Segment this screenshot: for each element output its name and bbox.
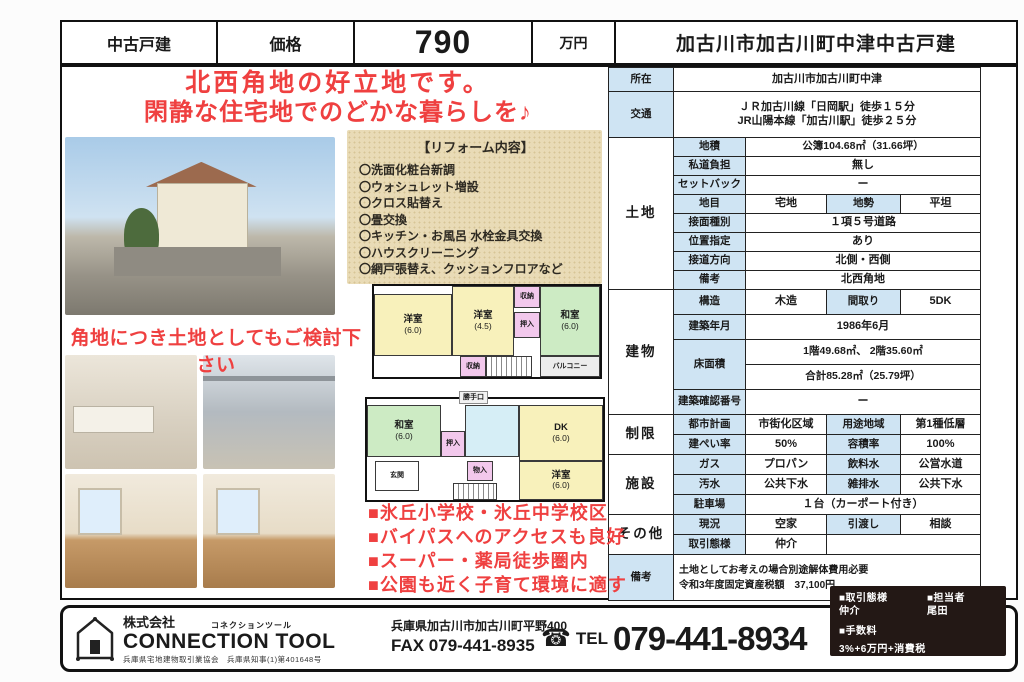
access-line2: JR山陽本線「加古川駅」徒歩２５分 [674, 115, 980, 129]
parking-value: １台（カーポート付き） [746, 495, 981, 515]
plan1f-washitsu: 和室 (6.0) [367, 405, 441, 457]
land-area-value: 公簿104.68㎡（31.66坪） [746, 138, 981, 157]
room-size: (6.0) [395, 432, 412, 441]
company-license: 兵庫県宅地建物取引業協会 兵庫県知事(1)第401648号 [123, 654, 335, 665]
reform-item: 〇ウォシュレット増設 [359, 179, 592, 196]
plan1f-back-door: 勝手口 [459, 391, 488, 404]
plan1f-closet: 物入 [467, 461, 493, 481]
photo-exterior-house-shape [157, 183, 248, 249]
room-name: 和室 [394, 421, 413, 431]
plan1f-oshiire: 押入 [441, 431, 465, 457]
setback-label: セットバック [674, 176, 746, 195]
road-direction-label: 接道方向 [674, 252, 746, 271]
drainage-value: 公共下水 [901, 475, 981, 495]
phone-icon: ☎ [541, 627, 571, 651]
land-note-label: 備考 [674, 271, 746, 290]
photo-exterior [65, 137, 335, 315]
selling-point: ■バイパスへのアクセスも良好 [368, 525, 627, 549]
info-transaction-value: 仲介 [839, 605, 927, 618]
transaction-type-label: 取引態様 [674, 535, 746, 555]
info-fee-label: ■手数料 [839, 626, 877, 637]
city-plan-value: 市街化区域 [746, 415, 827, 435]
info-fee-value: 3%+6万円+消費税 [839, 644, 926, 655]
reform-item: 〇クロス貼替え [359, 195, 592, 212]
reform-item: 〇洗面化粧台新調 [359, 162, 592, 179]
current-status-value: 空家 [746, 515, 827, 535]
handover-label: 引渡し [827, 515, 901, 535]
room-size: (6.0) [552, 481, 569, 490]
reform-item: 〇畳交換 [359, 212, 592, 229]
restriction-section-label: 制限 [609, 415, 674, 455]
plan1f-stairs [453, 483, 497, 500]
built-date-value: 1986年6月 [746, 315, 981, 340]
sewage-label: 汚水 [674, 475, 746, 495]
plan2f-room-east: 和室 (6.0) [540, 286, 600, 356]
real-estate-flyer: 中古戸建 価格 790 万円 加古川市加古川町中津中古戸建 北西角地の好立地です… [60, 20, 1018, 672]
room-size: (4.5) [474, 322, 491, 331]
private-road-value: 無し [746, 157, 981, 176]
drainage-label: 雑排水 [827, 475, 901, 495]
floor-area-ratio-label: 容積率 [827, 435, 901, 455]
handover-value: 相談 [901, 515, 981, 535]
road-type-label: 接面種別 [674, 214, 746, 233]
property-type: 中古戸建 [62, 22, 218, 63]
floor-area-line2: 合計85.28㎡（25.79坪） [746, 365, 981, 390]
selling-point: ■氷丘小学校・氷丘中学校区 [368, 501, 627, 525]
floor-plan-2f: 洋室 (6.0) 洋室 (4.5) 収納 押入 和室 (6.0) [372, 284, 602, 379]
plan1f-entrance: 玄関 [375, 461, 419, 491]
access-label: 交通 [609, 92, 674, 138]
info-agent-label: ■担当者 [927, 592, 997, 605]
agent-info-box: ■取引態様 ■担当者 仲介 尾田 ■手数料 3%+6万円+消費税 [830, 586, 1006, 656]
photo-kitchen-counter-shape [73, 406, 154, 433]
room-name: 洋室 [473, 311, 492, 321]
terrain-value: 平坦 [901, 195, 981, 214]
photo-exterior-wall-shape [114, 247, 281, 275]
building-section-label: 建物 [609, 290, 674, 415]
plan2f-closet-top: 収納 [514, 286, 540, 308]
structure-label: 構造 [674, 290, 746, 315]
photo-room-window-shape [78, 488, 122, 535]
selling-point: ■公園も近く子育て環境に適す [368, 573, 627, 597]
company-prefix: 株式会社 [123, 612, 175, 631]
zoning-value: 第1種低層 [901, 415, 981, 435]
closet-label: 物入 [473, 467, 487, 475]
balcony-label: バルコニー [553, 363, 588, 371]
room-size: (6.0) [404, 326, 421, 335]
price-value: 790 [355, 22, 533, 63]
access-line1: ＪＲ加古川線「日岡駅」徒歩１５分 [674, 101, 980, 115]
footer-bar: 株式会社 コネクションツール CONNECTION TOOL 兵庫県宅地建物取引… [60, 605, 1018, 672]
empty-cell [827, 535, 981, 555]
land-section-label: 土地 [609, 138, 674, 290]
sewage-value: 公共下水 [746, 475, 827, 495]
land-note-value: 北西角地 [746, 271, 981, 290]
position-designation-label: 位置指定 [674, 233, 746, 252]
price-unit: 万円 [533, 22, 616, 63]
closet-label: 収納 [520, 293, 534, 301]
company-block: 株式会社 コネクションツール CONNECTION TOOL 兵庫県宅地建物取引… [123, 612, 335, 665]
plan2f-balcony: バルコニー [540, 356, 600, 377]
closet-label: 押入 [520, 321, 534, 329]
price-label: 価格 [218, 22, 355, 63]
tel-label: TEL [576, 629, 608, 649]
private-road-label: 私道負担 [674, 157, 746, 176]
catchphrase-line2: 閑静な住宅地でのどかな暮らしを♪ [62, 98, 614, 128]
room-size: (6.0) [552, 434, 569, 443]
road-direction-value: 北側・西側 [746, 252, 981, 271]
position-designation-value: あり [746, 233, 981, 252]
gas-label: ガス [674, 455, 746, 475]
selling-points: ■氷丘小学校・氷丘中学校区 ■バイパスへのアクセスも良好 ■スーパー・薬局徒歩圏… [368, 501, 627, 597]
floor-area-ratio-value: 100% [901, 435, 981, 455]
land-note: 角地につき土地としてもご検討下さい [62, 323, 370, 377]
coverage-ratio-value: 50% [746, 435, 827, 455]
layout-value: 5DK [901, 290, 981, 315]
zoning-label: 用途地域 [827, 415, 901, 435]
reform-item: 〇網戸張替え、クッションフロアなど [359, 261, 592, 278]
selling-point: ■スーパー・薬局徒歩圏内 [368, 549, 627, 573]
road-type-value: １項５号道路 [746, 214, 981, 233]
built-date-label: 建築年月 [674, 315, 746, 340]
gas-value: プロパン [746, 455, 827, 475]
setback-value: ー [746, 176, 981, 195]
parking-label: 駐車場 [674, 495, 746, 515]
structure-value: 木造 [746, 290, 827, 315]
layout-label: 間取り [827, 290, 901, 315]
plan2f-room-west: 洋室 (6.0) [374, 294, 452, 356]
plan2f-oshiire: 押入 [514, 312, 540, 338]
plan2f-stairs [486, 356, 532, 377]
company-name: CONNECTION TOOL [123, 631, 335, 653]
drinking-water-value: 公営水道 [901, 455, 981, 475]
plan1f-bathroom-area [465, 405, 519, 457]
photo-room-window-shape [216, 488, 260, 535]
reform-box: 【リフォーム内容】 〇洗面化粧台新調 〇ウォシュレット増設 〇クロス貼替え 〇畳… [347, 130, 602, 284]
room-name: 和室 [560, 311, 579, 321]
reform-title: 【リフォーム内容】 [359, 137, 592, 156]
photo-interior-room-2 [203, 474, 335, 588]
plan1f-youshitsu: 洋室 (6.0) [519, 461, 603, 500]
current-status-label: 現況 [674, 515, 746, 535]
plan2f-closet-bottom: 収納 [460, 356, 486, 377]
land-category-value: 宅地 [746, 195, 827, 214]
location-value: 加古川市加古川町中津 [674, 68, 981, 92]
reform-item: 〇キッチン・お風呂 水栓金具交換 [359, 228, 592, 245]
room-name: DK [554, 423, 568, 433]
land-area-label: 地積 [674, 138, 746, 157]
catchphrase: 北西角地の好立地です。 閑静な住宅地でのどかな暮らしを♪ [62, 68, 614, 128]
tel-block: ☎ TEL 079-441-8934 [541, 620, 807, 658]
plan1f-dk: DK (6.0) [519, 405, 603, 461]
land-category-label: 地目 [674, 195, 746, 214]
drinking-water-label: 飲料水 [827, 455, 901, 475]
tel-number: 079-441-8934 [613, 620, 807, 658]
catchphrase-line1: 北西角地の好立地です。 [62, 68, 614, 98]
reform-item: 〇ハウスクリーニング [359, 245, 592, 262]
photo-interior-room-1 [65, 474, 197, 588]
closet-label: 押入 [446, 440, 460, 448]
property-title: 加古川市加古川町中津中古戸建 [616, 22, 1016, 63]
confirmation-no-label: 建築確認番号 [674, 390, 746, 415]
info-agent-value: 尾田 [927, 605, 997, 618]
header-strip: 中古戸建 価格 790 万円 加古川市加古川町中津中古戸建 [60, 20, 1018, 65]
info-transaction-label: ■取引態様 [839, 592, 927, 605]
entrance-label: 玄関 [390, 472, 404, 480]
terrain-label: 地勢 [827, 195, 901, 214]
room-name: 洋室 [403, 315, 422, 325]
coverage-ratio-label: 建ぺい率 [674, 435, 746, 455]
plan2f-room-center: 洋室 (4.5) [452, 286, 514, 356]
confirmation-no-value: ー [746, 390, 981, 415]
closet-label: 収納 [466, 363, 480, 371]
content-area: 北西角地の好立地です。 閑静な住宅地でのどかな暮らしを♪ [60, 65, 1018, 600]
city-plan-label: 都市計画 [674, 415, 746, 435]
floor-area-line1: 1階49.68㎡、 2階35.60㎡ [746, 340, 981, 365]
room-size: (6.0) [561, 322, 578, 331]
transaction-type-value: 仲介 [746, 535, 827, 555]
property-spec-table: 所在 加古川市加古川町中津 交通 ＪＲ加古川線「日岡駅」徒歩１５分 JR山陽本線… [608, 67, 981, 601]
access-value: ＪＲ加古川線「日岡駅」徒歩１５分 JR山陽本線「加古川駅」徒歩２５分 [674, 92, 981, 138]
remarks-line1: 土地としてお考えの場合別途解体費用必要 [679, 563, 975, 578]
company-logo-house-icon [75, 616, 115, 662]
location-label: 所在 [609, 68, 674, 92]
floor-plan-1f: 勝手口 和室 (6.0) 押入 DK (6.0) 洋室 (6.0) [365, 397, 605, 502]
floor-area-label: 床面積 [674, 340, 746, 390]
